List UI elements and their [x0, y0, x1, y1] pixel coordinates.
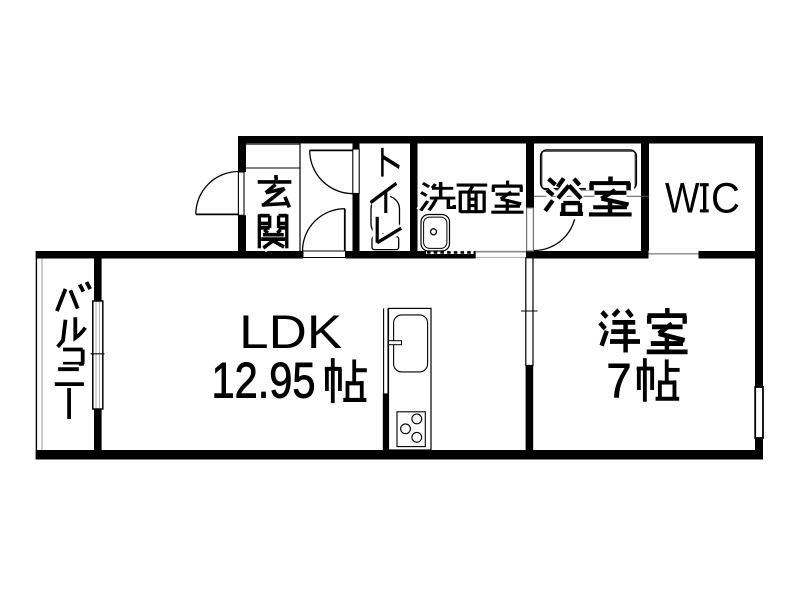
- svg-text:LDK: LDK: [239, 305, 342, 358]
- svg-text:C: C: [711, 174, 740, 221]
- svg-text:12.95: 12.95: [212, 351, 316, 408]
- svg-text:7: 7: [607, 354, 632, 408]
- svg-text:W: W: [665, 174, 700, 221]
